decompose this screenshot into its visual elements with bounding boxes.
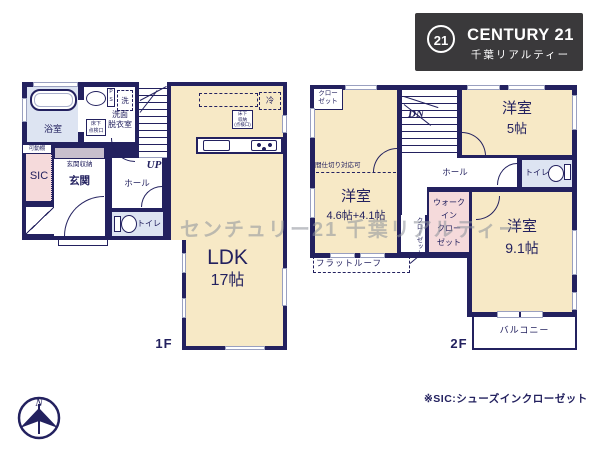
seal-ring-gap	[455, 35, 460, 43]
stove-icon	[251, 140, 277, 151]
balcony-label: バルコニー	[472, 325, 577, 336]
bedroom5-label: 洋室	[462, 100, 572, 118]
bedroom91-size-label: 9.1帖	[472, 240, 572, 257]
window	[572, 95, 577, 130]
company-name: 千葉リアルティー	[463, 47, 578, 62]
hall-1f-label: ホール	[112, 178, 162, 188]
sic-label: SIC	[26, 170, 52, 183]
window	[182, 253, 186, 273]
toilet-bowl-icon	[121, 215, 137, 233]
window	[572, 230, 577, 275]
window	[508, 85, 545, 90]
century21-logo: 21 CENTURY 21 千葉リアルティー	[415, 13, 583, 71]
bedroom46-label: 洋室	[315, 188, 397, 206]
watermark-text: センチュリー21 千葉リアルティー	[180, 213, 520, 242]
sic-footnote: ※SIC:シューズインクローゼット	[424, 391, 588, 406]
toilet-tank-icon	[564, 164, 571, 180]
floor1-label: 1F	[150, 336, 178, 352]
toilet-2f-label: トイレ	[524, 168, 550, 178]
window	[225, 346, 265, 350]
dn-label: DN	[404, 108, 428, 121]
window	[345, 85, 377, 90]
century21-seal-icon: 21	[427, 25, 455, 53]
porch-nook	[26, 207, 54, 234]
window	[467, 85, 500, 90]
bedroom5-size-label: 5帖	[462, 121, 572, 137]
toilet-bowl-icon	[548, 165, 564, 182]
window	[282, 268, 287, 306]
brand-name: CENTURY 21	[463, 26, 578, 45]
washer-label: 洗	[117, 96, 133, 105]
partition-note-label: 間仕切り対応可	[315, 162, 379, 170]
pipe-space-label: PS	[107, 89, 115, 104]
window	[310, 108, 315, 138]
movable-shelf-label: 可動棚	[22, 146, 52, 153]
hall-2f-nook	[402, 187, 427, 215]
window	[22, 98, 27, 122]
cupboard-box	[199, 93, 258, 107]
floor2-label: 2F	[444, 336, 474, 352]
balcony-sliding-door	[497, 311, 543, 318]
fridge-label: 冷	[259, 96, 281, 106]
compass-icon: N	[14, 390, 64, 442]
partition-dashed-line	[316, 172, 396, 173]
entrance-storage-counter	[54, 147, 105, 159]
toilet-tank-icon	[114, 216, 121, 232]
floorplan-flyer: 21 CENTURY 21 千葉リアルティー PS 洗	[0, 0, 600, 450]
washbasin-icon	[86, 91, 106, 106]
hall-2f-label: ホール	[430, 167, 480, 177]
toilet-1f-label: トイレ	[136, 219, 162, 229]
window	[33, 82, 78, 87]
window	[572, 292, 577, 310]
window	[182, 298, 186, 318]
ldk-size-label: 17帖	[195, 271, 260, 290]
porch-step	[58, 240, 108, 246]
flat-roof-label: フラットルーフ	[316, 258, 408, 268]
ldk-label: LDK	[195, 245, 260, 270]
entrance-storage-label: 玄関収納	[54, 161, 105, 169]
bathtub-icon	[30, 89, 77, 111]
bathroom-label: 浴室	[30, 124, 76, 135]
kitchen-side-door	[282, 115, 287, 133]
washroom-label: 洗面脱衣室	[103, 110, 137, 129]
underfloor-storage-label: 床下 収納 (点検口)	[232, 111, 253, 128]
entrance-label: 玄関	[54, 175, 105, 188]
up-label: UP	[142, 159, 166, 172]
kitchen-sink-icon	[203, 140, 230, 151]
closet-top-label: クローゼット	[313, 90, 343, 107]
